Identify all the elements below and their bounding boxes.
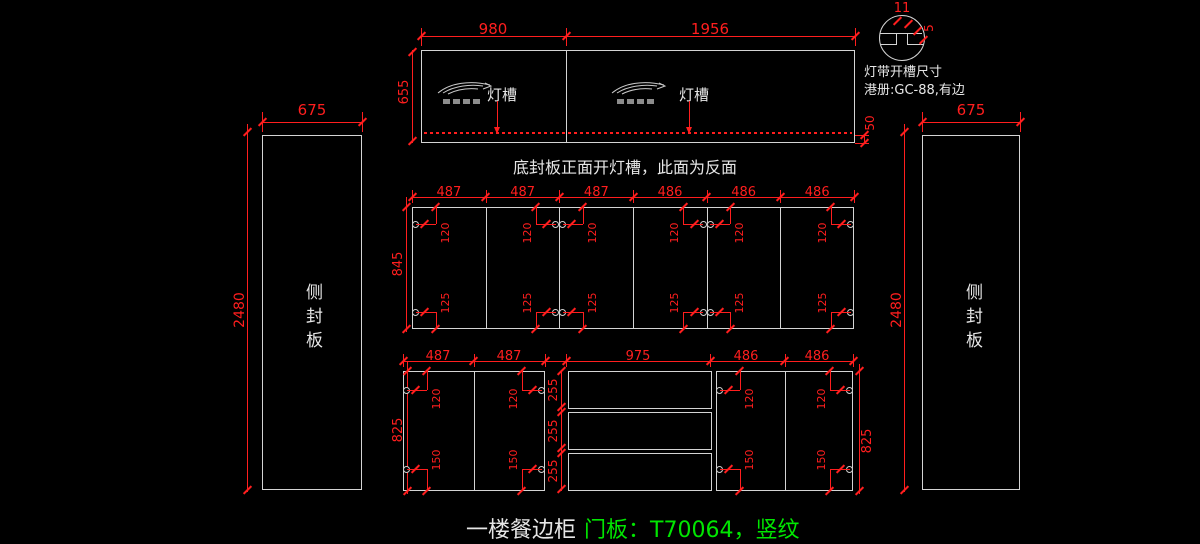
dim-line xyxy=(1020,112,1021,132)
dim-line xyxy=(710,354,711,367)
light-groove-dashed-line xyxy=(424,132,852,134)
dim-line xyxy=(421,36,566,37)
dim-label-980: 980 xyxy=(468,21,518,37)
dim-line xyxy=(683,207,684,224)
drawer-width-label: 975 xyxy=(613,348,663,364)
door-width-label: 486 xyxy=(721,348,771,364)
side-panel-label: 侧封板 xyxy=(960,283,985,355)
dim-label: 120 xyxy=(584,208,600,258)
dim-label: 120 xyxy=(741,374,757,424)
drawer-front xyxy=(568,453,712,491)
door-divider xyxy=(780,207,781,329)
dim-label-675: 675 xyxy=(287,102,337,118)
dim-label-655: 655 xyxy=(396,67,412,117)
dim-line xyxy=(536,207,537,224)
door-width-label: 487 xyxy=(413,348,463,364)
dim-label: 150 xyxy=(813,435,829,485)
detail-profile-line xyxy=(896,34,897,45)
leader-line xyxy=(689,101,690,129)
groove-label: 灯槽 xyxy=(679,84,709,105)
drawer-height-label: 255 xyxy=(545,446,561,496)
dim-line xyxy=(407,361,408,494)
door-width-label: 487 xyxy=(424,184,474,200)
door-divider xyxy=(486,207,487,329)
detail-title: 灯带开槽尺寸 xyxy=(864,61,942,80)
dim-line xyxy=(412,50,413,143)
dim-line xyxy=(563,224,583,225)
dim-label-11: 11 xyxy=(877,0,927,16)
door-width-label: 486 xyxy=(645,184,695,200)
dim-label-1956: 1956 xyxy=(685,21,735,37)
dim-line xyxy=(853,354,854,367)
brand-logo-icon xyxy=(436,78,494,105)
dim-line xyxy=(566,28,567,46)
detail-profile-line xyxy=(907,34,908,45)
dim-line xyxy=(561,371,562,491)
dim-line xyxy=(707,190,708,203)
door-width-label: 486 xyxy=(792,184,842,200)
dim-line xyxy=(421,28,422,46)
cad-drawing-canvas: 灯槽 灯槽 980 1956 655 50 底封板正面开灯槽，此面为反面 11 … xyxy=(0,0,1200,544)
side-panel-label: 侧封板 xyxy=(300,283,325,355)
door-width-label: 486 xyxy=(719,184,769,200)
groove-label: 灯槽 xyxy=(487,84,517,105)
dim-line xyxy=(486,190,487,203)
dim-line xyxy=(566,354,567,367)
dim-label: 125 xyxy=(519,278,535,328)
dim-label-675: 675 xyxy=(946,102,996,118)
dim-label: 125 xyxy=(731,278,747,328)
dim-line xyxy=(633,190,634,203)
dim-line xyxy=(262,122,362,123)
door-divider xyxy=(785,371,786,491)
dim-line xyxy=(522,371,523,390)
dim-line xyxy=(559,190,560,203)
dim-line xyxy=(362,112,363,132)
dim-line xyxy=(904,124,905,492)
dim-label: 120 xyxy=(814,208,830,258)
dim-label: 150 xyxy=(428,435,444,485)
dim-line xyxy=(247,124,248,492)
door-width-label: 487 xyxy=(498,184,548,200)
door-width-label: 487 xyxy=(571,184,621,200)
door-width-label: 487 xyxy=(484,348,534,364)
dim-label: 125 xyxy=(666,278,682,328)
arrow-down-icon xyxy=(494,127,500,134)
dim-line xyxy=(563,312,583,313)
dim-line xyxy=(403,354,404,367)
dim-line xyxy=(922,122,1020,123)
panel-caption: 底封板正面开灯槽，此面为反面 xyxy=(500,154,750,178)
dim-label-depth: 5 xyxy=(921,3,937,53)
groove-detail-circle xyxy=(879,15,925,61)
dim-label: 120 xyxy=(505,374,521,424)
detail-profile-line xyxy=(881,44,896,45)
dim-label: 150 xyxy=(505,435,521,485)
dim-label: 825 xyxy=(390,405,406,455)
dim-label: 150 xyxy=(741,435,757,485)
dim-label: 125 xyxy=(814,278,830,328)
arrow-down-icon xyxy=(686,127,692,134)
dim-label: 845 xyxy=(390,239,406,289)
dim-line xyxy=(855,28,856,46)
leader-line xyxy=(497,101,498,129)
brand-logo-icon xyxy=(610,78,668,105)
dim-label: 120 xyxy=(519,208,535,258)
dim-line xyxy=(854,190,855,203)
dim-label: 120 xyxy=(666,208,682,258)
dim-line xyxy=(830,371,831,390)
detail-subtitle: 港册:GC-88,有边 xyxy=(864,79,965,98)
dim-line xyxy=(780,190,781,203)
door-spec-text: 门板：T70064，竖纹 xyxy=(584,512,799,544)
door-width-label: 486 xyxy=(792,348,842,364)
dim-line xyxy=(922,112,923,132)
dim-label: 120 xyxy=(813,374,829,424)
cabinet-name: 一楼餐边柜 xyxy=(466,512,576,544)
dim-line xyxy=(831,207,832,224)
dim-line xyxy=(474,354,475,367)
drawer-front xyxy=(568,412,712,450)
dim-label-2480: 2480 xyxy=(232,285,248,335)
dim-line xyxy=(412,190,413,203)
dim-label: 125 xyxy=(584,278,600,328)
door-divider xyxy=(474,371,475,491)
dim-label: 125 xyxy=(437,278,453,328)
dim-line xyxy=(262,112,263,132)
dim-line xyxy=(566,36,855,37)
dim-label: 120 xyxy=(437,208,453,258)
dim-line xyxy=(785,354,786,367)
dim-label: 825 xyxy=(859,416,875,466)
dim-label: 120 xyxy=(428,374,444,424)
door-divider xyxy=(633,207,634,329)
dim-line xyxy=(406,197,407,332)
drawing-title: 一楼餐边柜 门板：T70064，竖纹 xyxy=(466,512,799,544)
dim-label-2480: 2480 xyxy=(889,285,905,335)
dim-label: 120 xyxy=(731,208,747,258)
panel-divider-line xyxy=(566,50,567,143)
drawer-front xyxy=(568,371,712,409)
